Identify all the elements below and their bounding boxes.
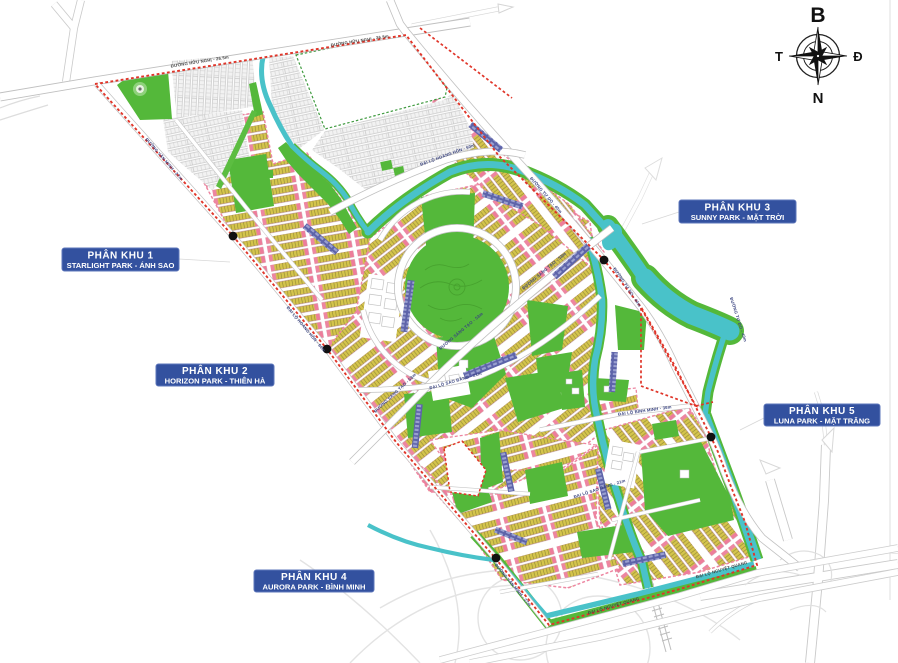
svg-text:T: T [775, 49, 783, 64]
svg-text:N: N [813, 90, 824, 107]
svg-text:SUNNY PARK - MẶT TRỜI: SUNNY PARK - MẶT TRỜI [691, 213, 785, 222]
svg-text:PHÂN KHU 4: PHÂN KHU 4 [281, 570, 347, 583]
svg-text:PHÂN KHU 3: PHÂN KHU 3 [704, 201, 770, 214]
svg-text:HORIZON PARK - THIÊN HÀ: HORIZON PARK - THIÊN HÀ [165, 377, 266, 386]
svg-text:PHÂN KHU 1: PHÂN KHU 1 [87, 249, 153, 262]
svg-text:AURORA PARK - BÌNH MINH: AURORA PARK - BÌNH MINH [263, 583, 366, 592]
svg-text:B: B [810, 4, 825, 27]
svg-text:STARLIGHT PARK - ÁNH SAO: STARLIGHT PARK - ÁNH SAO [67, 261, 175, 270]
svg-text:PHÂN KHU 5: PHÂN KHU 5 [789, 404, 855, 417]
svg-text:PHÂN KHU 2: PHÂN KHU 2 [182, 364, 248, 377]
svg-text:LUNA PARK - MẶT TRĂNG: LUNA PARK - MẶT TRĂNG [774, 417, 870, 426]
svg-text:Đ: Đ [853, 49, 862, 64]
